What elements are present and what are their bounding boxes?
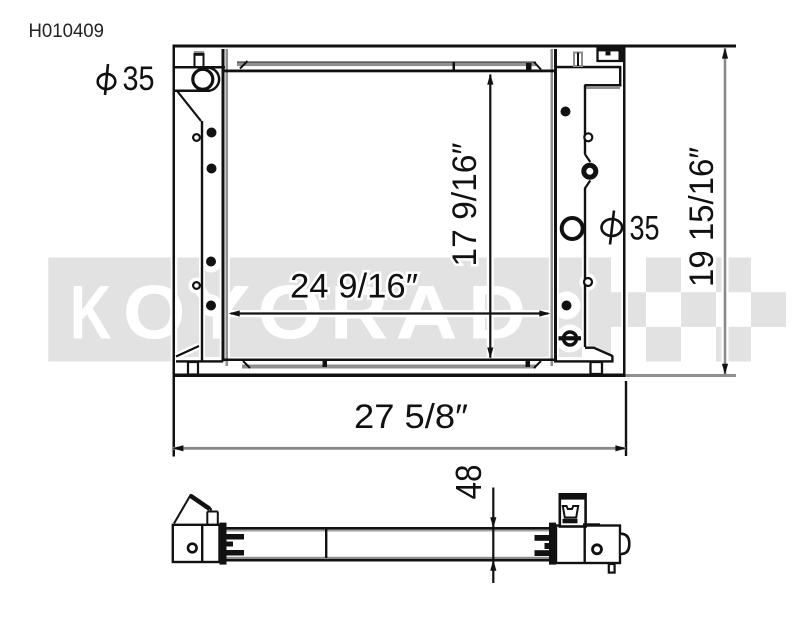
svg-text:27 5/8″: 27 5/8″ — [354, 398, 468, 436]
svg-text:19 15/16″: 19 15/16″ — [683, 147, 721, 287]
svg-text:24 9/16″: 24 9/16″ — [290, 268, 418, 306]
svg-text:48: 48 — [448, 465, 489, 500]
svg-text:H010409: H010409 — [29, 20, 105, 42]
svg-text:35: 35 — [630, 210, 660, 248]
svg-text:K: K — [70, 271, 112, 356]
svg-text:35: 35 — [123, 60, 155, 98]
svg-text:17 9/16″: 17 9/16″ — [446, 143, 484, 267]
